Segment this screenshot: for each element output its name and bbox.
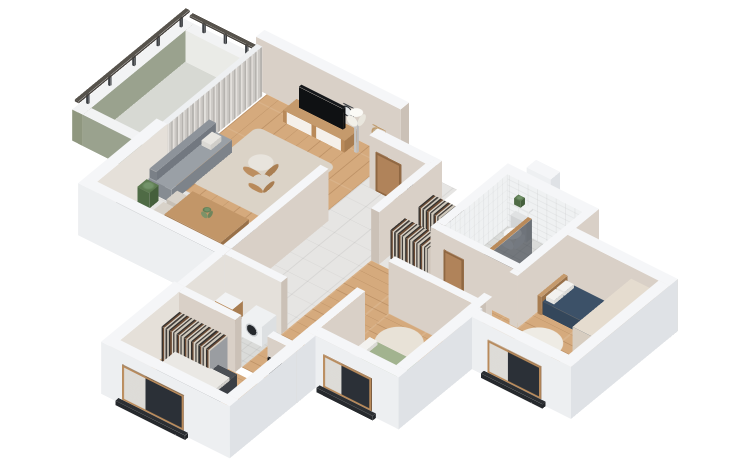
wall-wc-north-side [281,277,287,334]
window-right-sill-side [542,402,545,409]
tv-side [343,107,346,130]
wall-right-bedroom-west-a-front [509,272,517,328]
floorplan-render [0,0,750,469]
wall-master-north-a-side [235,315,241,372]
wall-master-south-side [230,399,238,458]
wall-middle-bedroom-south-side [399,370,407,429]
balcony-parapet-west-front [72,109,83,146]
window-middle-sill-side [373,413,376,420]
window-master-sill-side [185,433,188,440]
wall-hall-closet-front [371,208,379,264]
